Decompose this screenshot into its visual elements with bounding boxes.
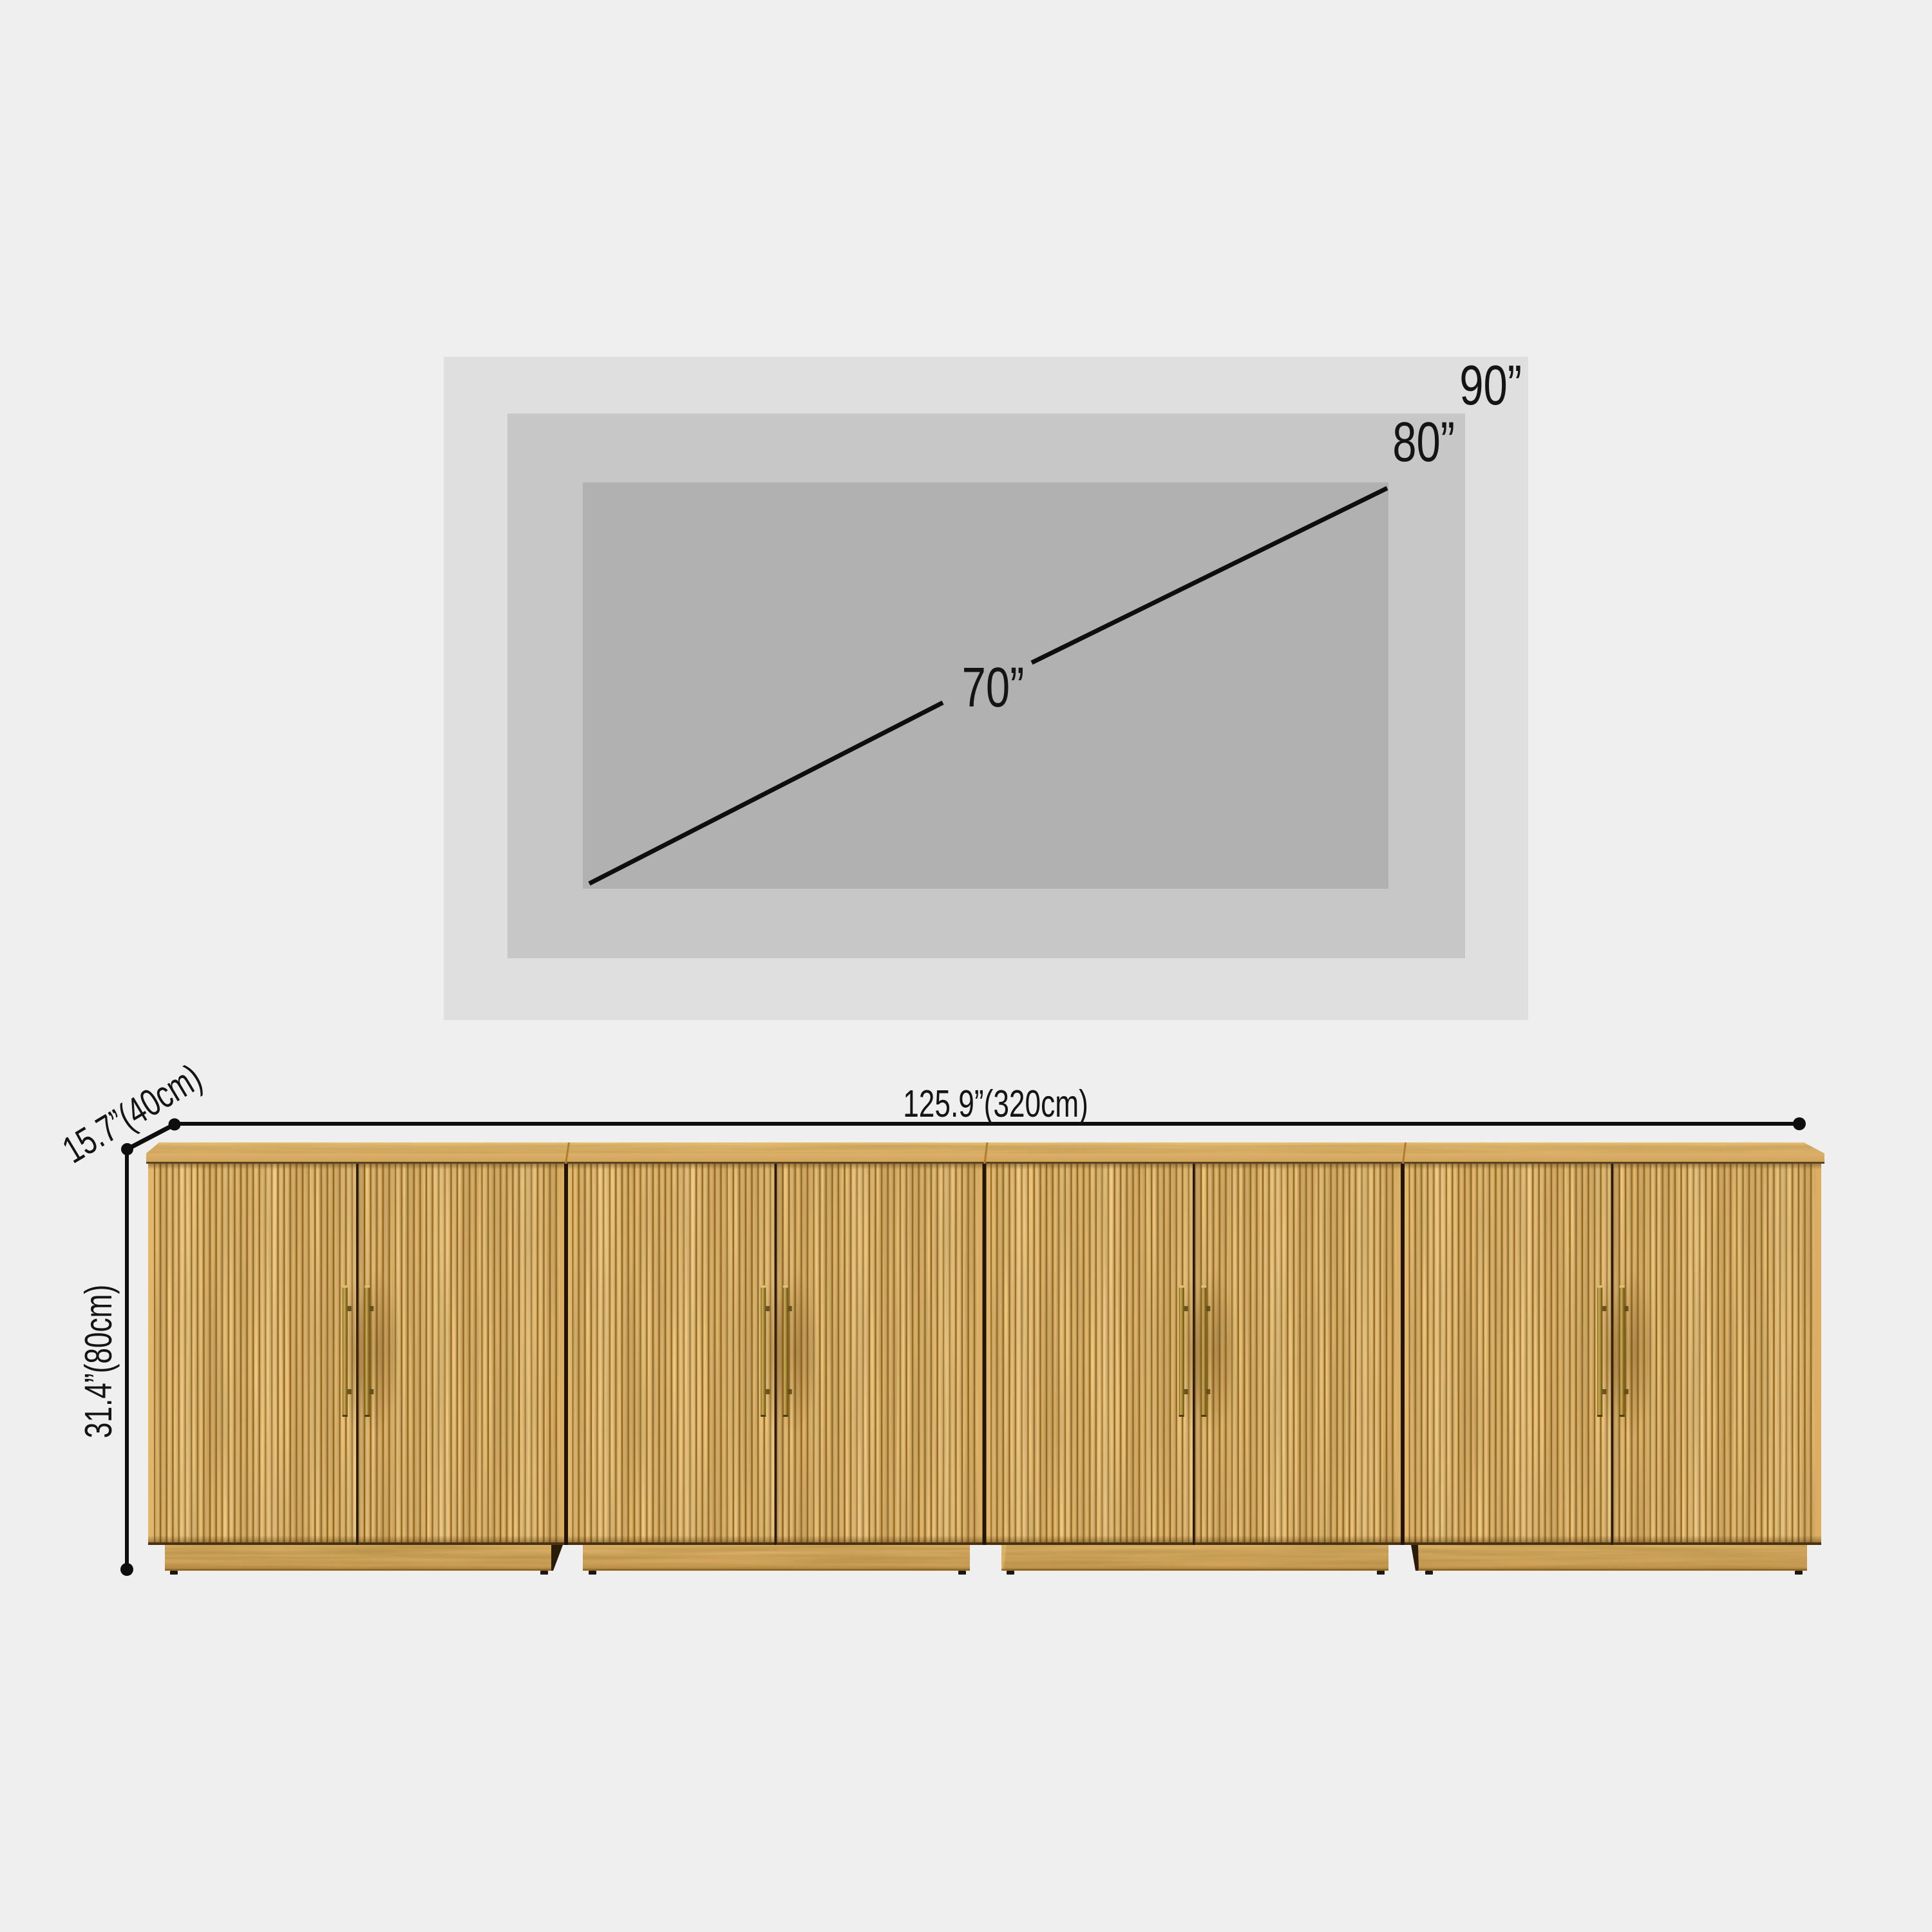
svg-text:80”: 80” — [1392, 412, 1455, 473]
svg-text:125.9”(320cm): 125.9”(320cm) — [903, 1083, 1088, 1126]
svg-text:90”: 90” — [1459, 355, 1522, 417]
svg-text:70”: 70” — [962, 657, 1025, 719]
svg-text:31.4”(80cm): 31.4”(80cm) — [78, 1285, 120, 1438]
